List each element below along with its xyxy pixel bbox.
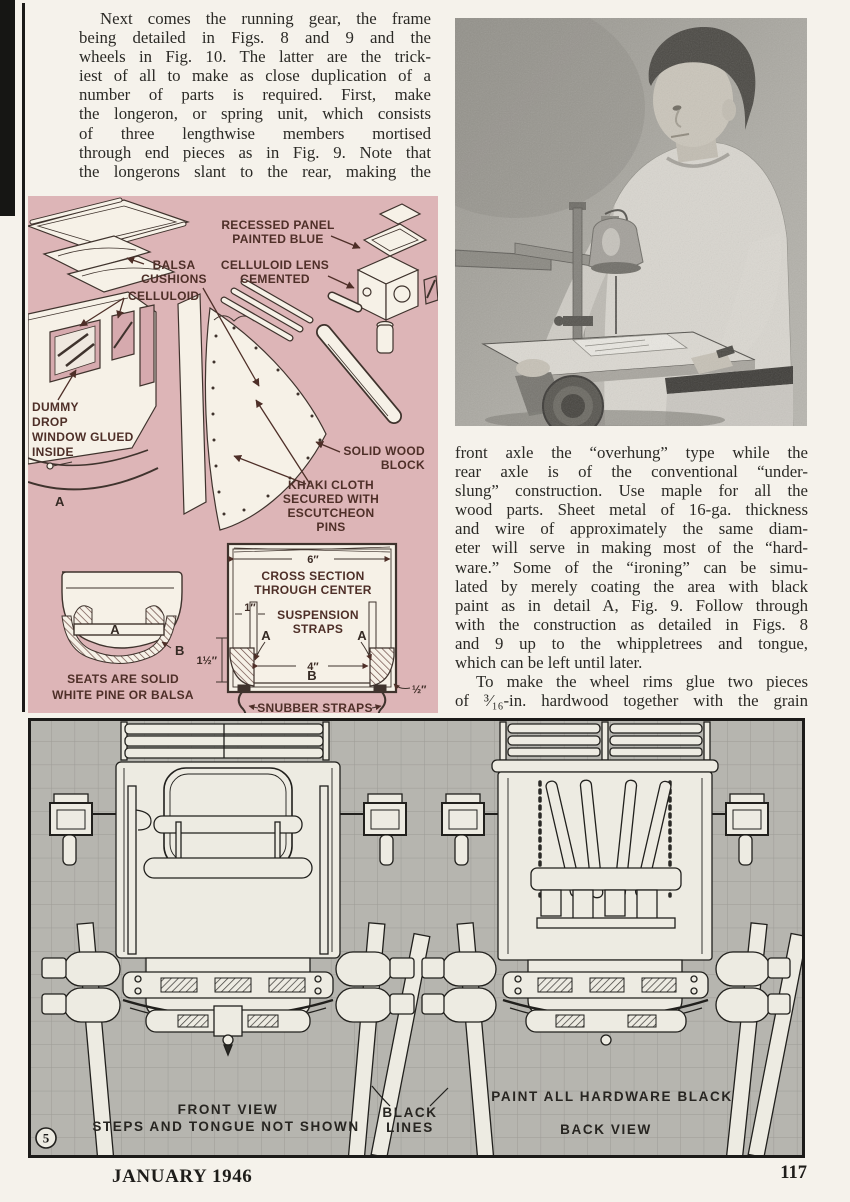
text-line: the longeron, or spring unit, which cons… [79, 104, 431, 123]
khaki-label-1: KHAKI CLOTH [288, 478, 374, 492]
dim-1-5in: 1½″ [196, 655, 217, 667]
solid-wood-label-1: SOLID WOOD [343, 444, 425, 458]
text-line: Next comes the running gear, the frame [79, 9, 431, 28]
text-line: through end pieces as in Fig. 9. Note th… [79, 143, 431, 162]
footer-page-number: 117 [780, 1163, 807, 1184]
khaki-label-3: ESCUTCHEON [287, 506, 374, 520]
text-line: being detailed in Figs. 8 and 9 and the [79, 28, 431, 47]
construction-detail-panel: A [28, 196, 438, 713]
text-line: ware.” Some of the “ironing” can be simu… [455, 558, 808, 577]
celluloid-lens-label-1: CELLULOID LENS [221, 258, 329, 272]
section-b-letter: B [307, 668, 316, 683]
seats-label-2: WHITE PINE OR BALSA [52, 688, 194, 702]
text-line: the longerons slant to the rear, making … [79, 162, 431, 181]
recessed-panel-label-2: PAINTED BLUE [232, 232, 323, 246]
text-line: which can be left until later. [455, 653, 808, 672]
page-edge-shadow [0, 0, 15, 216]
text-line: with the construction as detailed in Fig… [455, 615, 808, 634]
text-line: lated by merely coating the area with bl… [455, 577, 808, 596]
article-column-right-para1: front axle the “overhung” type while the… [455, 443, 808, 672]
strap-a-right: A [357, 628, 367, 643]
balsa-label-2: CUSHIONS [141, 272, 207, 286]
paint-hardware-label: PAINT ALL HARDWARE BLACK [491, 1089, 732, 1104]
photo-man-at-scroll-saw [455, 18, 807, 426]
text-line: eter will serve in making most of the “h… [455, 538, 808, 557]
seat-b-letter: B [175, 643, 184, 658]
text-line: front axle the “overhung” type while the [455, 443, 808, 462]
dummy-window-label-2: DROP [32, 415, 68, 429]
magazine-page: Next comes the running gear, the framebe… [0, 0, 850, 1202]
detail-a-letter: A [55, 494, 65, 509]
text-line: rear axle is of the conventional “under- [455, 462, 808, 481]
black-lines-label-2: LINES [386, 1120, 434, 1135]
text-line: number of parts is required. First, make [79, 85, 431, 104]
khaki-label-2: SECURED WITH [283, 492, 379, 506]
dummy-window-label-3: WINDOW GLUED [32, 430, 134, 444]
photo-grain [455, 18, 807, 426]
left-column-rule [22, 3, 25, 712]
footer-issue-date: JANUARY 1946 [112, 1166, 252, 1188]
text-line: wheels in Fig. 10. The latter are the tr… [79, 47, 431, 66]
front-view-label: FRONT VIEW [178, 1102, 279, 1117]
cross-section-label-2: THROUGH CENTER [254, 583, 372, 597]
steps-note-label: STEPS AND TONGUE NOT SHOWN [92, 1119, 359, 1134]
suspension-label-1: SUSPENSION [277, 608, 359, 622]
black-lines-label-1: BLACK [382, 1105, 437, 1120]
article-column-left: Next comes the running gear, the framebe… [79, 9, 431, 181]
dim-1in: 1″ [244, 602, 256, 614]
article-column-right-para2: To make the wheel rims glue two piecesof… [455, 672, 808, 710]
recessed-panel-label-1: RECESSED PANEL [221, 218, 334, 232]
text-line: of ³⁄₁₆-in. hardwood together with the g… [455, 691, 808, 710]
figure-5-front-back-views: FRONT VIEW STEPS AND TONGUE NOT SHOWN BL… [28, 718, 805, 1158]
text-line: of three lengthwise members mortised [79, 124, 431, 143]
dummy-window-label-4: INSIDE [32, 445, 74, 459]
dim-half-in: ½″ [412, 684, 427, 696]
celluloid-label: CELLULOID [128, 289, 199, 303]
balsa-label-1: BALSA [153, 258, 196, 272]
seats-label-1: SEATS ARE SOLID [67, 672, 179, 686]
snubber-label: SNUBBER STRAPS [257, 701, 373, 713]
cross-section-label-1: CROSS SECTION [261, 569, 364, 583]
celluloid-lens-label-2: CEMENTED [240, 272, 310, 286]
text-line: slung” construction. Use maple for all t… [455, 481, 808, 500]
text-line: wood parts. Sheet metal of 16-ga. thickn… [455, 500, 808, 519]
text-line: iest of all to make as close duplication… [79, 66, 431, 85]
dim-6in: 6″ [307, 554, 319, 566]
text-line: To make the wheel rims glue two pieces [455, 672, 808, 691]
text-line: and 9 up to the whippletrees and tongue, [455, 634, 808, 653]
text-line: paint as in detail A, Fig. 9. Follow thr… [455, 596, 808, 615]
solid-wood-label-2: BLOCK [381, 458, 425, 472]
strap-a-left: A [261, 628, 271, 643]
seat-a-letter: A [110, 622, 120, 637]
suspension-label-2: STRAPS [293, 622, 343, 636]
text-line: and wire of approximately the same diam- [455, 519, 808, 538]
khaki-label-4: PINS [316, 520, 345, 534]
figure-number: 5 [43, 1131, 50, 1146]
dummy-window-label-1: DUMMY [32, 400, 79, 414]
back-view-label: BACK VIEW [560, 1122, 652, 1137]
